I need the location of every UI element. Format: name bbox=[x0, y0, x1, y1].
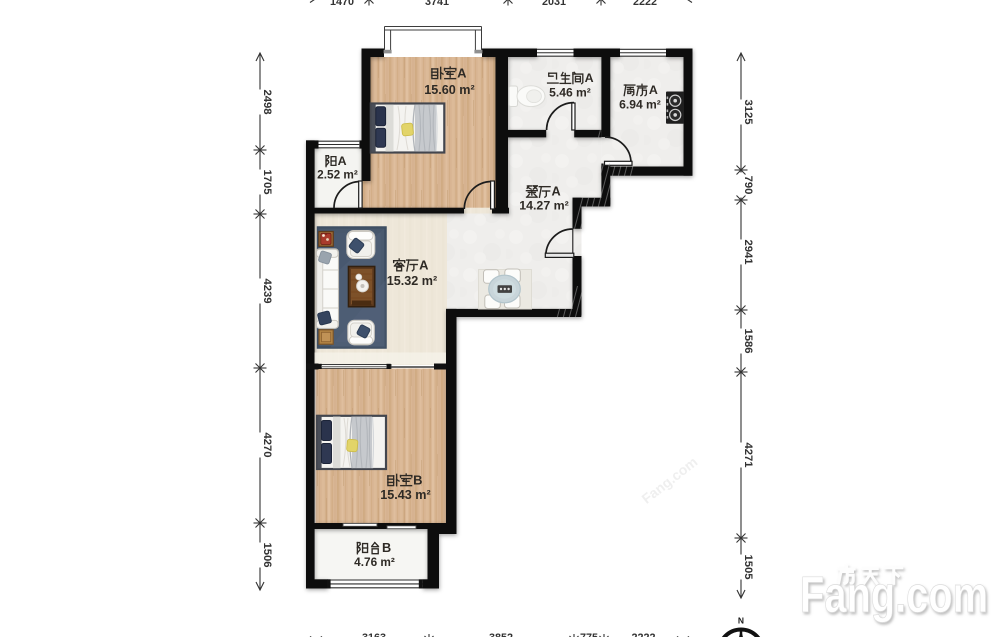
svg-text:2222: 2222 bbox=[631, 632, 655, 637]
svg-text:15.43 m²: 15.43 m² bbox=[380, 488, 430, 502]
svg-text:B: B bbox=[382, 540, 391, 555]
svg-text:A: A bbox=[649, 83, 658, 97]
svg-text:775: 775 bbox=[580, 632, 598, 637]
svg-text:1506: 1506 bbox=[261, 542, 273, 567]
svg-text:5.46 m²: 5.46 m² bbox=[549, 86, 591, 100]
svg-text:1470: 1470 bbox=[330, 0, 354, 8]
svg-text:2498: 2498 bbox=[261, 89, 273, 114]
svg-text:2941: 2941 bbox=[742, 239, 754, 264]
svg-text:B: B bbox=[413, 472, 422, 487]
svg-text:3163: 3163 bbox=[362, 632, 386, 637]
svg-text:790: 790 bbox=[742, 176, 754, 195]
svg-text:Fang.com: Fang.com bbox=[800, 566, 988, 623]
svg-text:1705: 1705 bbox=[261, 169, 273, 194]
svg-text:4239: 4239 bbox=[261, 278, 273, 303]
svg-text:4270: 4270 bbox=[261, 432, 273, 457]
svg-text:3741: 3741 bbox=[425, 0, 449, 8]
svg-text:6.94 m²: 6.94 m² bbox=[619, 98, 661, 112]
svg-text:4.76 m²: 4.76 m² bbox=[354, 555, 395, 569]
svg-text:A: A bbox=[338, 154, 347, 168]
svg-text:15.32 m²: 15.32 m² bbox=[387, 274, 437, 288]
svg-text:3125: 3125 bbox=[742, 99, 754, 124]
svg-text:A: A bbox=[419, 257, 429, 272]
svg-text:14.27 m²: 14.27 m² bbox=[519, 199, 569, 213]
svg-text:2031: 2031 bbox=[542, 0, 566, 8]
svg-text:N: N bbox=[738, 616, 744, 626]
svg-text:4271: 4271 bbox=[742, 442, 754, 467]
svg-text:2.52 m²: 2.52 m² bbox=[317, 168, 358, 182]
svg-text:1586: 1586 bbox=[742, 328, 754, 353]
svg-text:2222: 2222 bbox=[633, 0, 657, 8]
svg-text:A: A bbox=[552, 184, 561, 199]
svg-text:A: A bbox=[585, 71, 594, 85]
svg-text:1505: 1505 bbox=[742, 554, 754, 579]
svg-text:A: A bbox=[457, 65, 467, 80]
svg-text:15.60 m²: 15.60 m² bbox=[424, 83, 474, 97]
svg-text:3852: 3852 bbox=[489, 632, 513, 637]
